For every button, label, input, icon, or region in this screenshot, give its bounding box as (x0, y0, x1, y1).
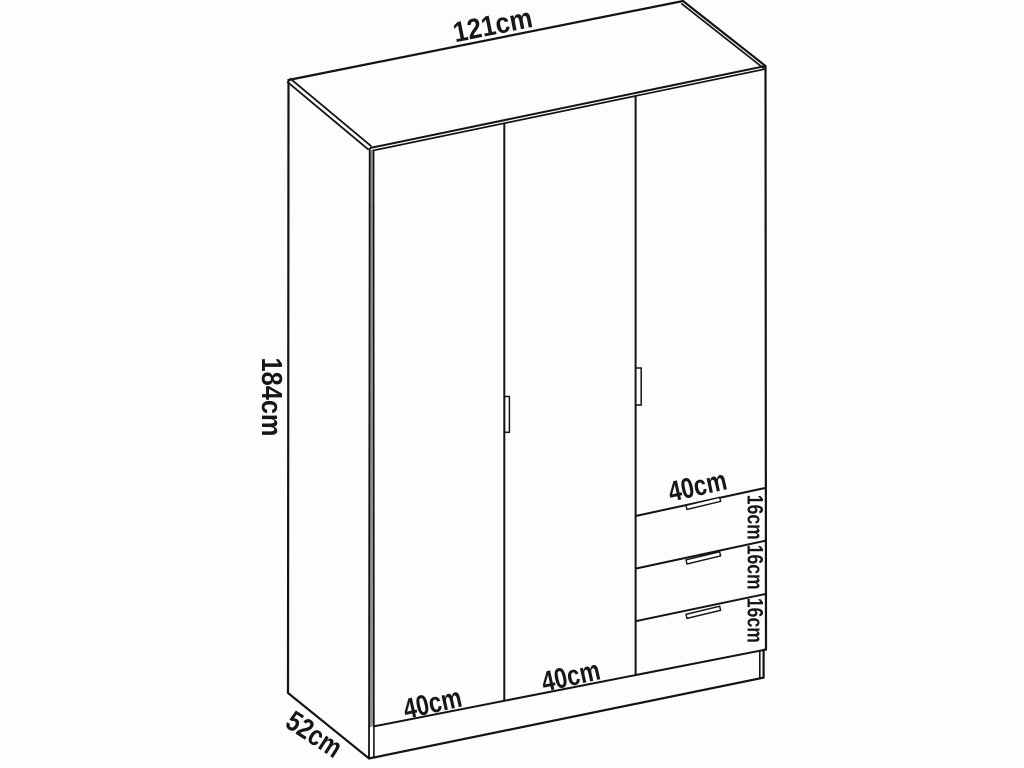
svg-text:184cm: 184cm (255, 358, 287, 437)
svg-text:16cm: 16cm (743, 545, 768, 590)
svg-text:16cm: 16cm (743, 598, 768, 643)
svg-text:16cm: 16cm (742, 495, 767, 540)
